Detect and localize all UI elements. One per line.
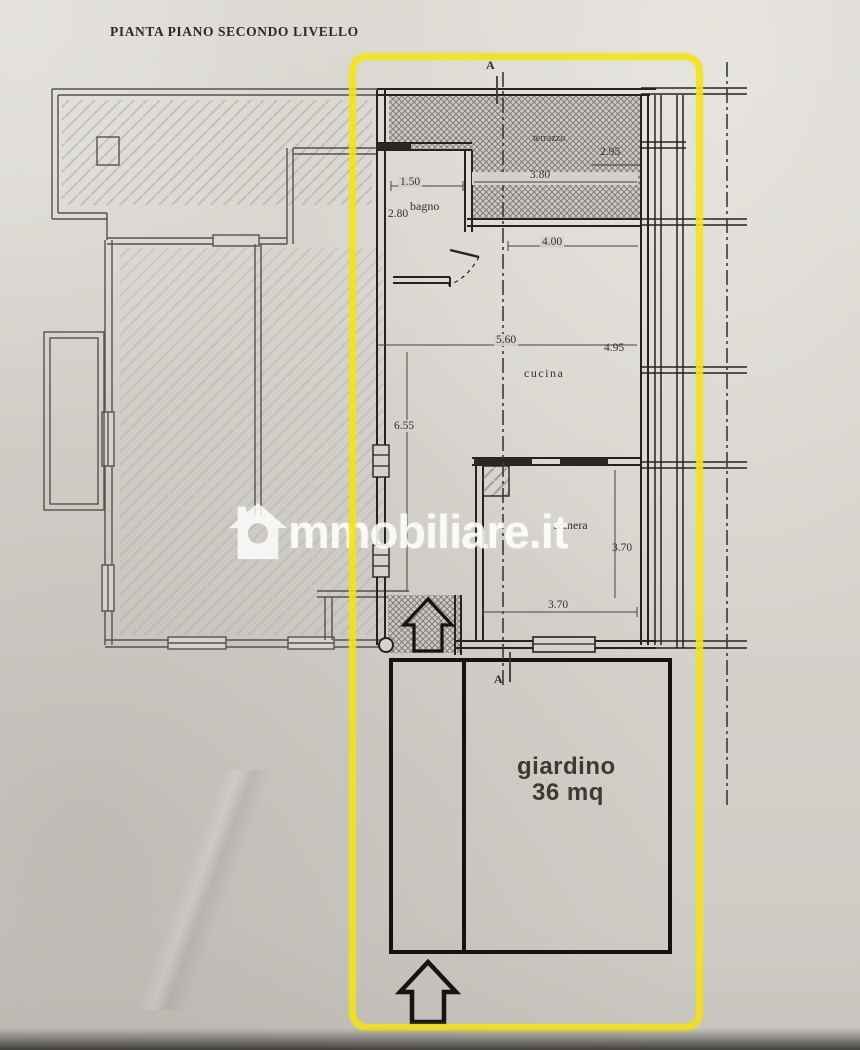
page-title: PIANTA PIANO SECONDO LIVELLO [110,24,359,40]
highlight-box [349,53,703,1031]
photo-edge-shadow [0,1028,860,1050]
